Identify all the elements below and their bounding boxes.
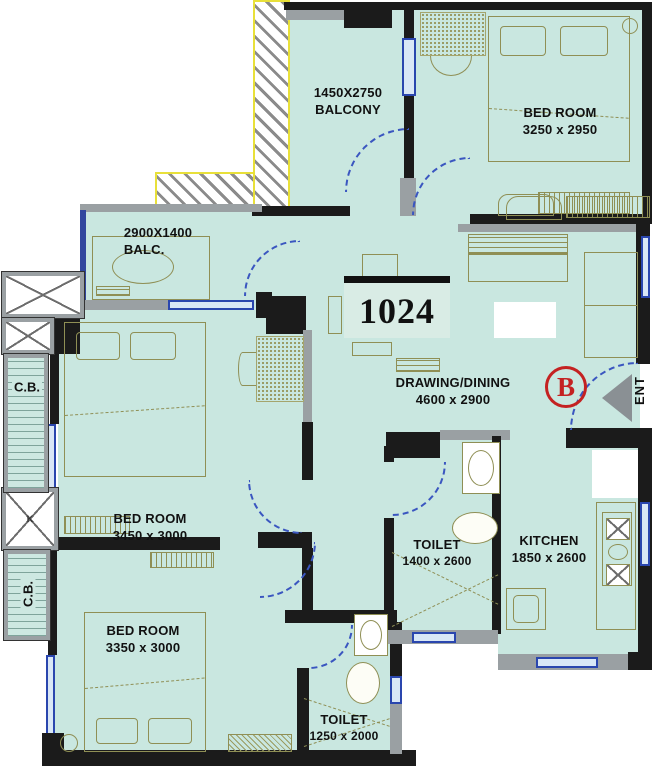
- column-toilet-main-nw: [386, 432, 440, 458]
- sofa-long: [468, 234, 568, 254]
- label-balcony-top-dims: 1450X2750: [314, 85, 382, 102]
- label-balcony-left-name: BALC.: [124, 242, 192, 259]
- sofa-long-seat: [468, 254, 568, 282]
- label-balcony-top-name: BALCONY: [314, 102, 382, 119]
- label-drawing-name: DRAWING/DINING: [396, 375, 511, 392]
- wall-toilet-main-west-a: [384, 446, 394, 462]
- corner-kitchen-se: [628, 652, 652, 670]
- label-kitchen-name: KITCHEN: [512, 533, 587, 550]
- label-bedroom-top: BED ROOM 3250 x 2950: [523, 105, 598, 139]
- lift-shaft-1: [2, 272, 84, 318]
- entrance-arrow-icon: [602, 374, 632, 422]
- wall-bedroom-top-gray: [458, 224, 640, 232]
- label-balcony-left-dims: 2900X1400: [124, 225, 192, 242]
- bed-bottom-pillow-2: [148, 718, 192, 744]
- column-divider-mid: [266, 306, 306, 334]
- label-toilet-small-dims: 1250 x 2000: [310, 729, 379, 745]
- wall-balcony-divider-a: [404, 8, 414, 38]
- floor-plan: K C.B. C.B. 1024: [0, 0, 652, 768]
- label-bedroom-mid: BED ROOM 3450 x 3000: [113, 511, 188, 545]
- dining-chair-2: [328, 296, 342, 334]
- label-toilet-main-dims: 1400 x 2600: [403, 554, 472, 570]
- window-toilet-main: [412, 632, 456, 643]
- wall-toilet-small-east-b: [390, 704, 402, 754]
- basin-main: [468, 450, 494, 486]
- label-toilet-main: TOILET 1400 x 2600: [403, 537, 472, 569]
- balcony-left-grill: [96, 286, 130, 296]
- sideboard-dining: [396, 358, 440, 372]
- bed-bottom-pillow-1: [96, 718, 138, 744]
- dining-chair-3: [352, 342, 392, 356]
- stove-oval: [608, 544, 628, 560]
- bed-top-pillow-1: [500, 26, 546, 56]
- wall-bottom: [42, 750, 416, 766]
- coffee-table: [494, 302, 556, 338]
- wall-top: [284, 2, 650, 10]
- lift-shaft-2: [2, 318, 54, 354]
- block-badge-letter: B: [557, 372, 575, 403]
- bed-mid-pillow-1: [76, 332, 120, 360]
- label-bedroom-top-name: BED ROOM: [523, 105, 598, 122]
- wall-kitchen-top: [566, 428, 652, 448]
- wall-balcony-bottom: [252, 206, 350, 216]
- window-kitchen-right: [640, 502, 650, 566]
- wall-divider-mid-gray: [303, 330, 312, 424]
- label-bedroom-bottom: BED ROOM 3350 x 3000: [106, 623, 181, 657]
- label-kitchen: KITCHEN 1850 x 2600: [512, 533, 587, 567]
- label-balcony-top: 1450X2750 BALCONY: [314, 85, 382, 119]
- label-drawing-dining: DRAWING/DINING 4600 x 2900: [396, 375, 511, 409]
- hatch-area-vertical: [253, 0, 290, 212]
- window-kitchen-bottom: [536, 657, 598, 668]
- counter-white-kitchen: [592, 450, 638, 498]
- cupboard-top: [4, 354, 48, 492]
- wall-right-top: [642, 2, 652, 222]
- bed-mid-pillow-2: [130, 332, 176, 360]
- sofa-side-line: [584, 305, 638, 306]
- lift-mark-label: K: [27, 514, 34, 524]
- burner-1: [606, 518, 630, 540]
- wall-top-gray-band: [286, 10, 344, 20]
- bed-top-pillow-2: [560, 26, 608, 56]
- label-drawing-dims: 4600 x 2900: [396, 392, 511, 409]
- label-toilet-main-name: TOILET: [403, 537, 472, 554]
- label-balcony-left: 2900X1400 BALC.: [124, 225, 192, 259]
- tv-cabinet-drawing: [566, 196, 650, 218]
- planter-top: [420, 12, 486, 56]
- column-top-balcony: [344, 2, 392, 28]
- label-bedroom-mid-dims: 3450 x 3000: [113, 528, 188, 545]
- label-toilet-small: TOILET 1250 x 2000: [310, 712, 379, 744]
- wardrobe-bottom: [150, 552, 214, 568]
- window-balcony-divider: [402, 38, 416, 96]
- entrance-label: ENT: [632, 376, 647, 405]
- mat-bottom: [228, 734, 292, 752]
- console-curved: [506, 196, 562, 220]
- label-toilet-small-name: TOILET: [310, 712, 379, 729]
- cupboard-bottom-label: C.B.: [21, 579, 36, 609]
- label-bedroom-bottom-name: BED ROOM: [106, 623, 181, 640]
- bedside-table-bottom: [60, 734, 78, 752]
- room-fill-passage: [300, 432, 392, 612]
- window-bedbot-west: [46, 655, 55, 735]
- window-balcony-left: [168, 300, 254, 310]
- wall-balcony-left-top: [80, 204, 262, 212]
- label-bedroom-top-dims: 3250 x 2950: [523, 122, 598, 139]
- dresser-mid: [256, 336, 304, 402]
- wall-divider-mid-black: [302, 422, 313, 480]
- wc-small: [346, 662, 380, 704]
- label-bedroom-mid-name: BED ROOM: [113, 511, 188, 528]
- cupboard-top-label: C.B.: [12, 380, 42, 395]
- window-right-upper: [641, 236, 650, 298]
- label-bedroom-bottom-dims: 3350 x 3000: [106, 640, 181, 657]
- basin-small: [360, 620, 382, 650]
- dresser-mid-seat: [238, 352, 256, 386]
- kitchen-sink-bowl: [513, 595, 539, 623]
- dining-chair-1: [362, 254, 398, 278]
- unit-number: 1024: [359, 290, 435, 332]
- unit-number-box: 1024: [344, 276, 450, 338]
- wall-balcony-left-bottom: [80, 300, 168, 310]
- burner-2: [606, 564, 630, 586]
- bedside-table-top: [622, 18, 638, 34]
- block-badge: B: [545, 366, 587, 408]
- label-kitchen-dims: 1850 x 2600: [512, 550, 587, 567]
- wall-toilet-small-west: [297, 668, 309, 754]
- window-toilet-small: [390, 676, 402, 704]
